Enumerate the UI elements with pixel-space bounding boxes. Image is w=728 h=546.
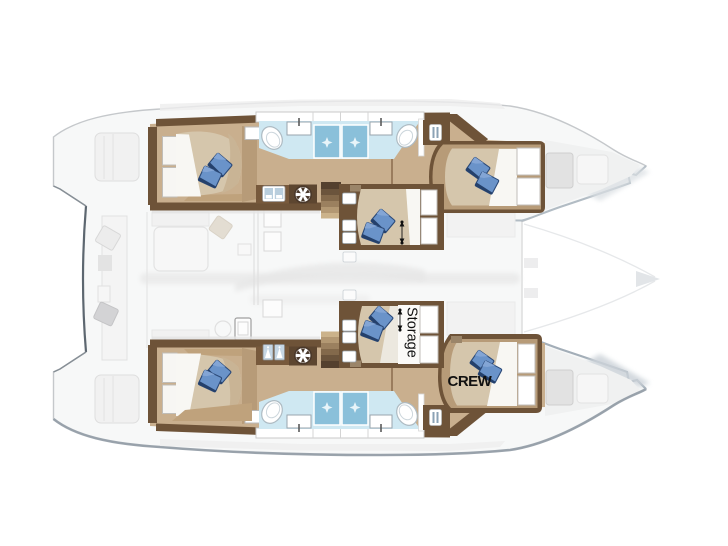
svg-text:CREW: CREW bbox=[448, 373, 493, 390]
svg-text:Storage: Storage bbox=[404, 307, 420, 358]
